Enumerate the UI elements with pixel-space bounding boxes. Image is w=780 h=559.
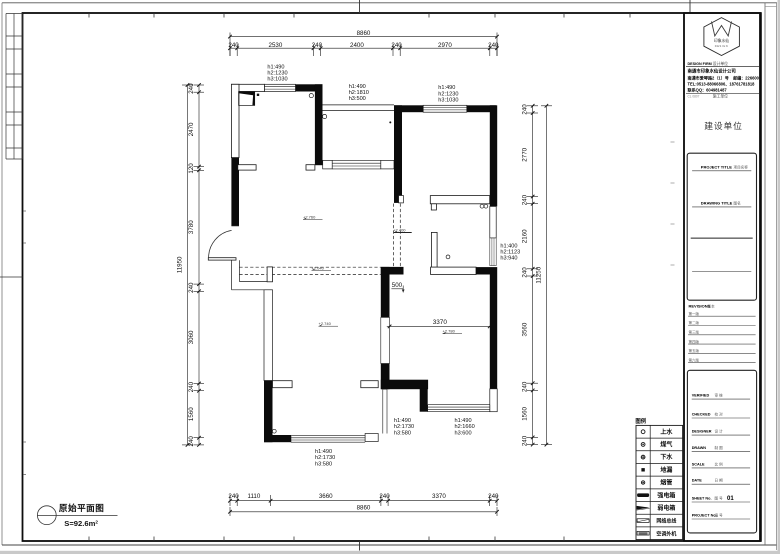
svg-text:2530: 2530: [269, 42, 283, 49]
svg-text:南通市爱琴路2（1）号 邮编：226600: 南通市爱琴路2（1）号 邮编：226600: [688, 74, 760, 80]
svg-text:制 图: 制 图: [715, 445, 724, 450]
svg-text:h1:490: h1:490: [349, 84, 366, 90]
svg-text:DRAWING TITLE: DRAWING TITLE: [701, 201, 733, 206]
svg-text:h2:1230: h2:1230: [438, 91, 458, 97]
svg-text:11250: 11250: [535, 266, 542, 283]
svg-text:01: 01: [727, 496, 734, 502]
svg-text:240: 240: [522, 435, 529, 446]
svg-text:h1:490: h1:490: [438, 85, 455, 91]
svg-text:240: 240: [188, 282, 195, 293]
svg-text:下水: 下水: [660, 453, 673, 461]
svg-text:h2:1660: h2:1660: [455, 424, 475, 430]
svg-text:240: 240: [522, 381, 529, 392]
svg-text:h1:490: h1:490: [455, 418, 472, 424]
svg-text:240: 240: [228, 42, 239, 49]
svg-text:240: 240: [522, 104, 529, 115]
svg-text:1560: 1560: [188, 407, 195, 421]
svg-text:h2:1730: h2:1730: [394, 424, 414, 430]
svg-text:240: 240: [488, 493, 499, 500]
svg-text:第三版: 第三版: [689, 330, 700, 335]
svg-text:1110: 1110: [247, 493, 260, 500]
svg-text:240: 240: [228, 493, 239, 500]
svg-text:第六版: 第六版: [689, 357, 700, 362]
svg-text:3780: 3780: [188, 220, 195, 234]
svg-text:h3:580: h3:580: [394, 430, 411, 436]
svg-text:120: 120: [188, 163, 195, 174]
svg-text:DRAWN: DRAWN: [692, 446, 707, 450]
svg-text:11950: 11950: [176, 256, 183, 273]
svg-text:h2:1123: h2:1123: [500, 249, 520, 255]
svg-text:建设单位: 建设单位: [704, 120, 742, 131]
svg-text:h3:500: h3:500: [349, 96, 366, 102]
svg-text:+2.400: +2.400: [393, 227, 406, 232]
svg-text:2770: 2770: [522, 147, 529, 161]
svg-text:CL 0807: CL 0807: [688, 94, 700, 98]
svg-text:地漏: 地漏: [660, 466, 672, 474]
svg-text:h2:1230: h2:1230: [267, 70, 287, 76]
svg-text:VERIFIED: VERIFIED: [692, 394, 710, 398]
svg-text:校 对: 校 对: [715, 411, 724, 416]
svg-text:编 号: 编 号: [715, 512, 724, 517]
svg-text:第五版: 第五版: [689, 348, 700, 353]
svg-text:项目名称: 项目名称: [734, 164, 749, 169]
svg-text:h2:1810: h2:1810: [349, 90, 369, 96]
svg-text:PROJECT No.: PROJECT No.: [692, 513, 717, 517]
svg-text:比 例: 比 例: [715, 461, 724, 466]
svg-text:S=92.6m2: S=92.6m2: [64, 519, 98, 528]
svg-text:第四版: 第四版: [689, 339, 700, 344]
svg-text:空调外机: 空调外机: [656, 530, 676, 537]
svg-text:240: 240: [379, 493, 390, 500]
svg-text:PROJECT TITLE: PROJECT TITLE: [701, 164, 732, 169]
svg-text:SHEET No.: SHEET No.: [692, 496, 712, 500]
svg-text:2970: 2970: [438, 42, 452, 49]
svg-text:上水: 上水: [660, 428, 673, 436]
svg-text:施工单位: 施工单位: [713, 93, 728, 98]
svg-text:240: 240: [488, 42, 499, 49]
svg-text:240: 240: [188, 381, 195, 392]
svg-text:3370: 3370: [432, 493, 446, 500]
svg-text:设 计: 设 计: [715, 429, 724, 434]
svg-text:2400: 2400: [350, 42, 364, 49]
svg-text:烟管: 烟管: [660, 479, 672, 487]
svg-text:2160: 2160: [522, 229, 529, 243]
svg-text:h1:400: h1:400: [500, 243, 517, 249]
svg-text:图 号: 图 号: [715, 495, 724, 500]
svg-text:h1:490: h1:490: [267, 64, 284, 70]
svg-text:h3:580: h3:580: [315, 461, 332, 467]
svg-text:3060: 3060: [188, 330, 195, 344]
svg-text:SCALE: SCALE: [692, 462, 705, 466]
svg-text:h3:940: h3:940: [500, 256, 517, 262]
svg-text:日 期: 日 期: [715, 478, 724, 483]
svg-text:网络总线: 网络总线: [656, 518, 676, 525]
svg-text:DATE: DATE: [692, 479, 703, 483]
svg-text:联系QQ：604981487: 联系QQ：604981487: [688, 86, 728, 92]
svg-text:弱电箱: 弱电箱: [657, 504, 675, 512]
svg-text:h3:1030: h3:1030: [267, 77, 287, 83]
svg-text:h2:1730: h2:1730: [315, 455, 335, 461]
svg-text:审 核: 审 核: [715, 393, 724, 398]
svg-text:第一版: 第一版: [689, 311, 700, 316]
svg-text:DESIGN FIRM: DESIGN FIRM: [688, 62, 712, 66]
svg-text:8860: 8860: [357, 505, 371, 512]
svg-text:8860: 8860: [357, 30, 371, 37]
svg-text:240: 240: [522, 267, 529, 278]
svg-text:TEL:0513-88066806、18761781818: TEL:0513-88066806、18761781818: [688, 81, 756, 86]
svg-text:设计单位: 设计单位: [713, 61, 728, 66]
svg-text:h3:600: h3:600: [455, 430, 472, 436]
svg-text:DESIGN: DESIGN: [715, 44, 729, 48]
svg-text:500: 500: [392, 282, 403, 289]
svg-text:240: 240: [391, 42, 402, 49]
svg-text:240: 240: [312, 42, 323, 49]
svg-text:CHECKED: CHECKED: [692, 412, 711, 416]
svg-text:3370: 3370: [433, 319, 448, 326]
svg-text:3560: 3560: [522, 322, 529, 336]
svg-text:2470: 2470: [188, 122, 195, 136]
svg-text:3660: 3660: [319, 493, 333, 500]
svg-text:h3:1030: h3:1030: [438, 97, 458, 103]
svg-text:原始平面图: 原始平面图: [59, 502, 104, 513]
svg-text:1560: 1560: [522, 406, 529, 420]
svg-text:版本: 版本: [708, 303, 716, 308]
svg-text:南通市印象水仙设计公司: 南通市印象水仙设计公司: [688, 68, 736, 75]
svg-text:图例: 图例: [635, 417, 646, 425]
svg-text:h1:490: h1:490: [394, 418, 411, 424]
svg-text:图名: 图名: [734, 201, 742, 206]
svg-text:第二版: 第二版: [689, 320, 700, 325]
svg-text:h1:490: h1:490: [315, 449, 332, 455]
svg-text:240: 240: [188, 83, 195, 94]
svg-text:强电箱: 强电箱: [657, 491, 675, 499]
svg-text:印象水仙: 印象水仙: [714, 38, 729, 43]
svg-text:煤气: 煤气: [660, 441, 672, 449]
svg-text:240: 240: [522, 194, 529, 205]
svg-text:DESIGNER: DESIGNER: [692, 430, 712, 434]
